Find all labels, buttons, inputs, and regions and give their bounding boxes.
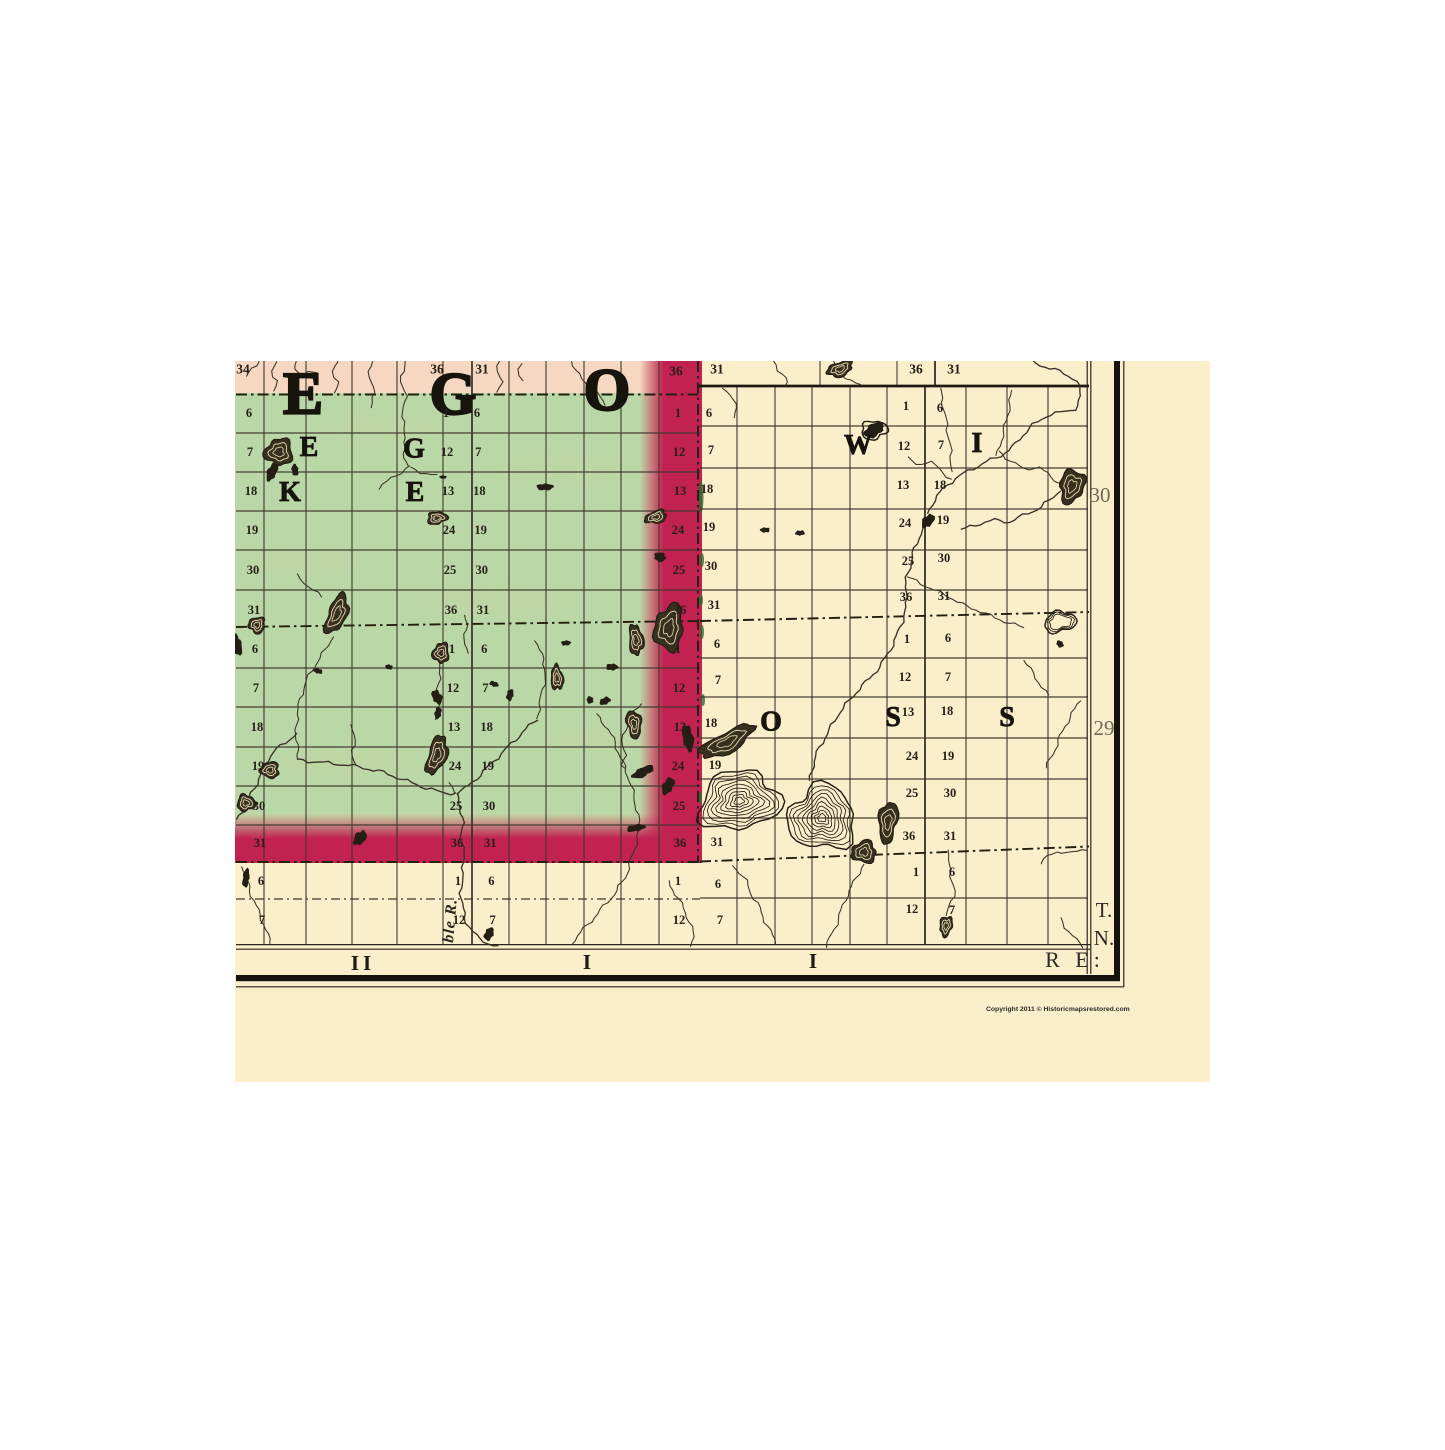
svg-text:6: 6 [714, 637, 720, 651]
svg-text:6: 6 [945, 631, 951, 645]
svg-text:1: 1 [903, 399, 909, 413]
svg-text:31: 31 [248, 603, 261, 617]
svg-text:36: 36 [674, 836, 687, 850]
svg-text:12: 12 [898, 439, 911, 453]
svg-text:7: 7 [949, 903, 955, 917]
svg-text:31: 31 [484, 836, 497, 850]
svg-text:19: 19 [937, 513, 950, 527]
svg-text:36: 36 [451, 836, 464, 850]
svg-text:30: 30 [483, 799, 496, 813]
svg-text:W: W [844, 430, 872, 461]
svg-text:1: 1 [455, 874, 461, 888]
svg-text:24: 24 [906, 749, 919, 763]
svg-text:19: 19 [246, 523, 259, 537]
svg-text:6: 6 [488, 874, 494, 888]
svg-text:31: 31 [475, 362, 489, 377]
svg-text:12: 12 [673, 445, 686, 459]
svg-text:18: 18 [480, 720, 493, 734]
svg-text:25: 25 [444, 563, 457, 577]
svg-text:25: 25 [673, 799, 686, 813]
svg-text:19: 19 [482, 759, 495, 773]
svg-text:7: 7 [945, 670, 951, 684]
svg-text:7: 7 [489, 913, 495, 927]
svg-text:36: 36 [909, 362, 923, 377]
svg-text:1: 1 [913, 865, 919, 879]
svg-text:12: 12 [906, 902, 919, 916]
svg-text:T.: T. [1096, 898, 1113, 922]
svg-text:S: S [999, 702, 1015, 733]
svg-text:R E:: R E: [1045, 947, 1105, 972]
svg-text:24: 24 [672, 523, 685, 537]
svg-text:29: 29 [1094, 716, 1115, 740]
svg-text:6: 6 [937, 401, 943, 415]
svg-text:30: 30 [944, 786, 957, 800]
svg-text:1: 1 [904, 632, 910, 646]
svg-text:E: E [283, 361, 323, 427]
svg-text:7: 7 [717, 913, 723, 927]
svg-text:31: 31 [711, 835, 724, 849]
svg-text:I: I [809, 949, 817, 973]
svg-text:7: 7 [708, 443, 714, 457]
svg-text:30: 30 [476, 563, 489, 577]
svg-text:E: E [300, 432, 319, 463]
svg-text:24: 24 [449, 759, 462, 773]
svg-text:25: 25 [673, 563, 686, 577]
svg-text:18: 18 [245, 484, 258, 498]
svg-text:6: 6 [252, 642, 258, 656]
svg-text:12: 12 [441, 445, 454, 459]
svg-text:31: 31 [710, 362, 724, 377]
svg-text:6: 6 [949, 865, 955, 879]
svg-text:1: 1 [443, 406, 449, 420]
svg-text:36: 36 [669, 364, 683, 379]
svg-text:31: 31 [708, 598, 721, 612]
svg-text:30: 30 [253, 799, 266, 813]
svg-text:13: 13 [674, 720, 687, 734]
svg-text:30: 30 [1090, 483, 1111, 507]
svg-text:19: 19 [709, 758, 722, 772]
svg-text:6: 6 [706, 406, 712, 420]
svg-text:31: 31 [477, 603, 490, 617]
svg-text:18: 18 [941, 704, 954, 718]
svg-text:7: 7 [247, 445, 253, 459]
svg-text:6: 6 [258, 874, 264, 888]
svg-text:18: 18 [701, 482, 714, 496]
svg-text:18: 18 [251, 720, 264, 734]
svg-text:7: 7 [482, 681, 488, 695]
svg-text:19: 19 [703, 520, 716, 534]
svg-text:30: 30 [938, 551, 951, 565]
svg-text:25: 25 [902, 554, 915, 568]
svg-text:30: 30 [247, 563, 260, 577]
svg-text:24: 24 [899, 516, 912, 530]
svg-text:7: 7 [253, 681, 259, 695]
svg-text:24: 24 [672, 759, 685, 773]
svg-text:I: I [972, 428, 983, 459]
svg-text:36: 36 [674, 603, 687, 617]
svg-text:31: 31 [947, 362, 961, 377]
svg-text:24: 24 [443, 523, 456, 537]
svg-text:18: 18 [934, 478, 947, 492]
svg-text:36: 36 [430, 362, 444, 377]
svg-text:I: I [583, 950, 591, 974]
svg-text:II: II [351, 951, 375, 975]
svg-text:7: 7 [938, 438, 944, 452]
svg-text:13: 13 [902, 705, 915, 719]
svg-text:19: 19 [474, 523, 487, 537]
svg-text:13: 13 [897, 478, 910, 492]
svg-text:12: 12 [447, 681, 460, 695]
svg-text:19: 19 [942, 749, 955, 763]
svg-text:E: E [406, 477, 425, 508]
svg-text:31: 31 [944, 829, 957, 843]
svg-text:36: 36 [900, 590, 913, 604]
svg-text:O: O [584, 357, 631, 423]
svg-text:18: 18 [473, 484, 486, 498]
svg-text:13: 13 [448, 720, 461, 734]
svg-text:13: 13 [674, 484, 687, 498]
svg-text:18: 18 [705, 716, 718, 730]
svg-text:34: 34 [236, 362, 250, 377]
svg-text:S: S [885, 702, 901, 733]
svg-text:19: 19 [252, 759, 265, 773]
svg-text:6: 6 [474, 406, 480, 420]
svg-text:6: 6 [715, 877, 721, 891]
svg-text:1: 1 [675, 642, 681, 656]
svg-text:6: 6 [246, 406, 252, 420]
svg-text:1: 1 [449, 642, 455, 656]
svg-text:25: 25 [450, 799, 463, 813]
svg-text:7: 7 [475, 445, 481, 459]
svg-text:36: 36 [903, 829, 916, 843]
svg-text:Copyright 2011 © Historicmaps: Copyright 2011 © Historicmapsrestored.co… [986, 1005, 1130, 1013]
svg-text:1: 1 [675, 406, 681, 420]
svg-text:36: 36 [445, 603, 458, 617]
svg-text:31: 31 [254, 836, 267, 850]
svg-text:7: 7 [259, 913, 265, 927]
svg-text:30: 30 [705, 559, 718, 573]
svg-text:12: 12 [899, 670, 912, 684]
svg-text:31: 31 [938, 589, 951, 603]
svg-text:6: 6 [481, 642, 487, 656]
svg-text:25: 25 [906, 786, 919, 800]
svg-text:1: 1 [675, 874, 681, 888]
svg-text:13: 13 [442, 484, 455, 498]
svg-text:12: 12 [673, 913, 686, 927]
svg-text:12: 12 [673, 681, 686, 695]
svg-text:O: O [760, 707, 782, 738]
svg-text:K: K [279, 477, 301, 508]
svg-text:G: G [403, 434, 425, 465]
svg-text:7: 7 [715, 673, 721, 687]
